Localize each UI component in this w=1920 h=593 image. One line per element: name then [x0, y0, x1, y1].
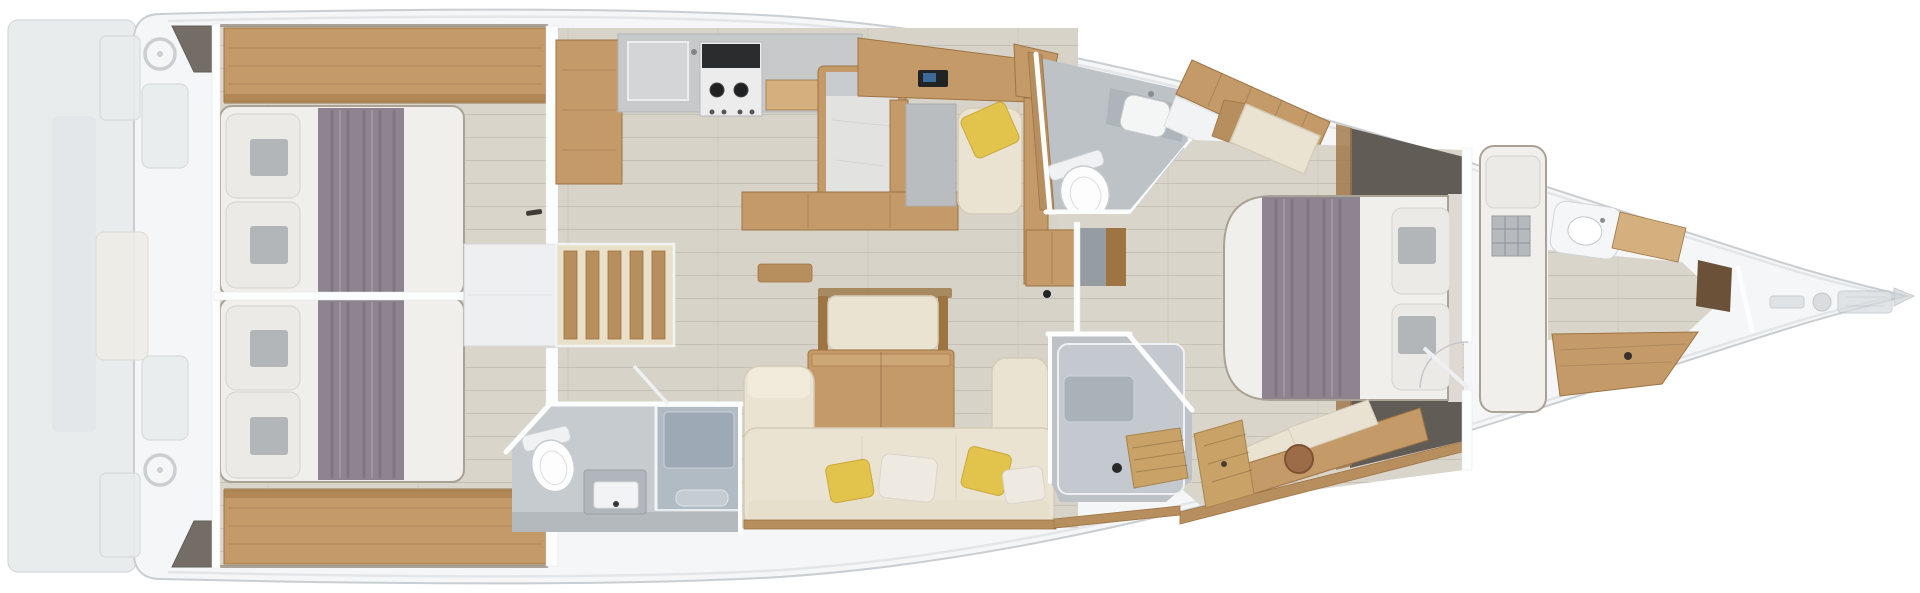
helm-pedestal-port [142, 84, 188, 168]
aft-head-counter [512, 512, 740, 532]
vanity-stool [1285, 445, 1313, 473]
forepeak-washbasin [1549, 200, 1624, 261]
galley-counter-left [556, 40, 622, 184]
chain-locker-wall [1696, 260, 1732, 312]
floor-fitting [1043, 290, 1051, 298]
faucet-icon [1148, 91, 1154, 97]
cockpit-bench-starboard [100, 473, 140, 557]
galley-sink [628, 42, 697, 100]
anchor-locker [1838, 291, 1892, 313]
helm-pedestal-starboard [142, 356, 188, 440]
aft-cabin-starboard-shelf [224, 488, 546, 564]
engine-box-cabinet [464, 244, 556, 346]
forepeak-berth [1480, 146, 1546, 412]
pillow [1486, 156, 1540, 208]
washbasin-cabinet [584, 470, 646, 514]
windlass-icon [1813, 293, 1831, 311]
swim-platform-hatch [52, 116, 96, 432]
deck-cleat [1770, 296, 1804, 308]
throw-pillow-white [878, 453, 938, 503]
step-locker [758, 264, 812, 282]
sofa-plinth [744, 520, 1056, 529]
faucet-icon [613, 501, 619, 507]
yacht-floor-plan [0, 0, 1920, 593]
cabin-divider-wall [214, 292, 464, 300]
aft-cabin-port-shelf [224, 28, 546, 104]
burner-icon [734, 83, 748, 97]
throw-pillow-yellow [825, 458, 875, 503]
dinette-bench [818, 288, 952, 350]
cockpit-table [96, 232, 148, 360]
shower-drain-icon [1112, 463, 1122, 473]
bow-fitting [1894, 288, 1914, 306]
cockpit-bench-port [100, 36, 140, 120]
island-end-panel [890, 100, 908, 194]
forepeak-cabin [1480, 146, 1752, 412]
hatch-grate [1492, 216, 1530, 256]
stove [700, 42, 762, 116]
aft-cabin-port-bed [220, 106, 464, 296]
burner-icon [710, 83, 724, 97]
aft-cabin-starboard-bed [220, 298, 464, 482]
throw-pillow-white [1002, 465, 1046, 504]
teak-bench [1126, 428, 1188, 488]
shower-stall [656, 406, 740, 510]
floor-plan-canvas [0, 0, 1920, 593]
companionway-stairs [556, 244, 674, 346]
chart-table [906, 104, 956, 206]
forepeak-seat-desk [1552, 332, 1698, 396]
master-bed [1224, 196, 1450, 400]
